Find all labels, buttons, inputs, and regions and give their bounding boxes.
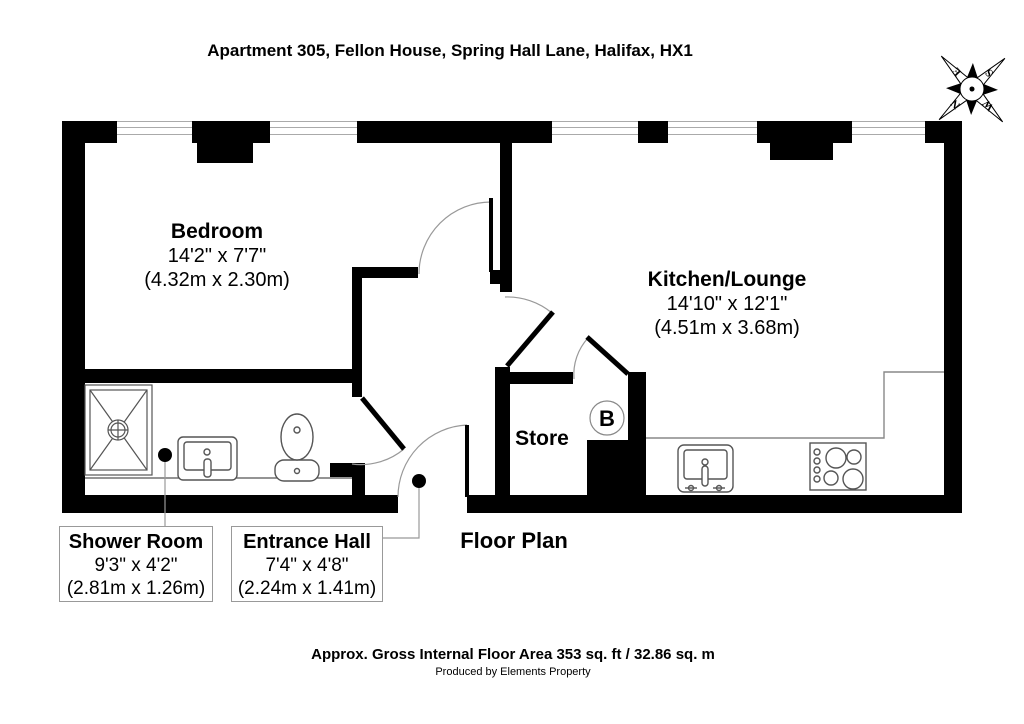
kitchen-dims-imperial: 14'10" x 12'1" (648, 292, 807, 316)
hall-leader-dot (412, 474, 426, 488)
door-arcs (352, 202, 588, 497)
entrance-door-arc (398, 425, 467, 497)
shower-door-leaf (362, 398, 404, 449)
footer-credit-text: Produced by Elements Property (435, 666, 590, 678)
hall-leader (382, 486, 419, 538)
floor-plan-page: B N S E (0, 0, 1024, 724)
plan-graphics: B N S E (0, 0, 1024, 724)
kitchen-door-leaf (507, 312, 553, 366)
door-leaves (362, 198, 628, 497)
bedroom-dims-imperial: 14'2" x 7'7" (144, 244, 290, 268)
bedroom-name: Bedroom (144, 220, 290, 244)
kitchen-dims-metric: (4.51m x 3.68m) (648, 316, 807, 340)
toilet (275, 414, 319, 481)
hall-dims-metric: (2.24m x 1.41m) (232, 577, 382, 600)
shower-name: Shower Room (60, 531, 212, 554)
bedroom-dims-metric: (4.32m x 2.30m) (144, 268, 290, 292)
hob (810, 443, 866, 490)
kitchen-label: Kitchen/Lounge 14'10" x 12'1" (4.51m x 3… (648, 268, 807, 340)
basin (178, 437, 237, 480)
shower-dims-imperial: 9'3" x 4'2" (60, 554, 212, 577)
hall-name: Entrance Hall (232, 531, 382, 554)
shower-door-arc (352, 449, 404, 465)
bedroom-label: Bedroom 14'2" x 7'7" (4.32m x 2.30m) (144, 220, 290, 292)
shower-leader-dot (158, 448, 172, 462)
kitchen-sink (678, 445, 733, 492)
footer-area-text: Approx. Gross Internal Floor Area 353 sq… (311, 646, 715, 663)
store-door-arc (574, 338, 588, 379)
store-label: Store (515, 427, 569, 451)
boiler-badge: B (590, 401, 624, 435)
shower-tray (85, 385, 152, 475)
kitchen-name: Kitchen/Lounge (648, 268, 807, 292)
boiler-letter: B (599, 406, 615, 431)
shower-room-label-box: Shower Room 9'3" x 4'2" (2.81m x 1.26m) (59, 526, 213, 602)
store-door-leaf (587, 337, 628, 374)
hall-dims-imperial: 7'4" x 4'8" (232, 554, 382, 577)
kitchen-counter (646, 372, 944, 438)
kitchen-door-arc (505, 297, 552, 313)
bedroom-door-arc (419, 202, 491, 274)
floor-plan-label: Floor Plan (460, 528, 568, 554)
page-title: Apartment 305, Fellon House, Spring Hall… (207, 41, 693, 61)
entrance-hall-label-box: Entrance Hall 7'4" x 4'8" (2.24m x 1.41m… (231, 526, 383, 602)
compass-rose: N S E W (908, 25, 1024, 152)
shower-dims-metric: (2.81m x 1.26m) (60, 577, 212, 600)
